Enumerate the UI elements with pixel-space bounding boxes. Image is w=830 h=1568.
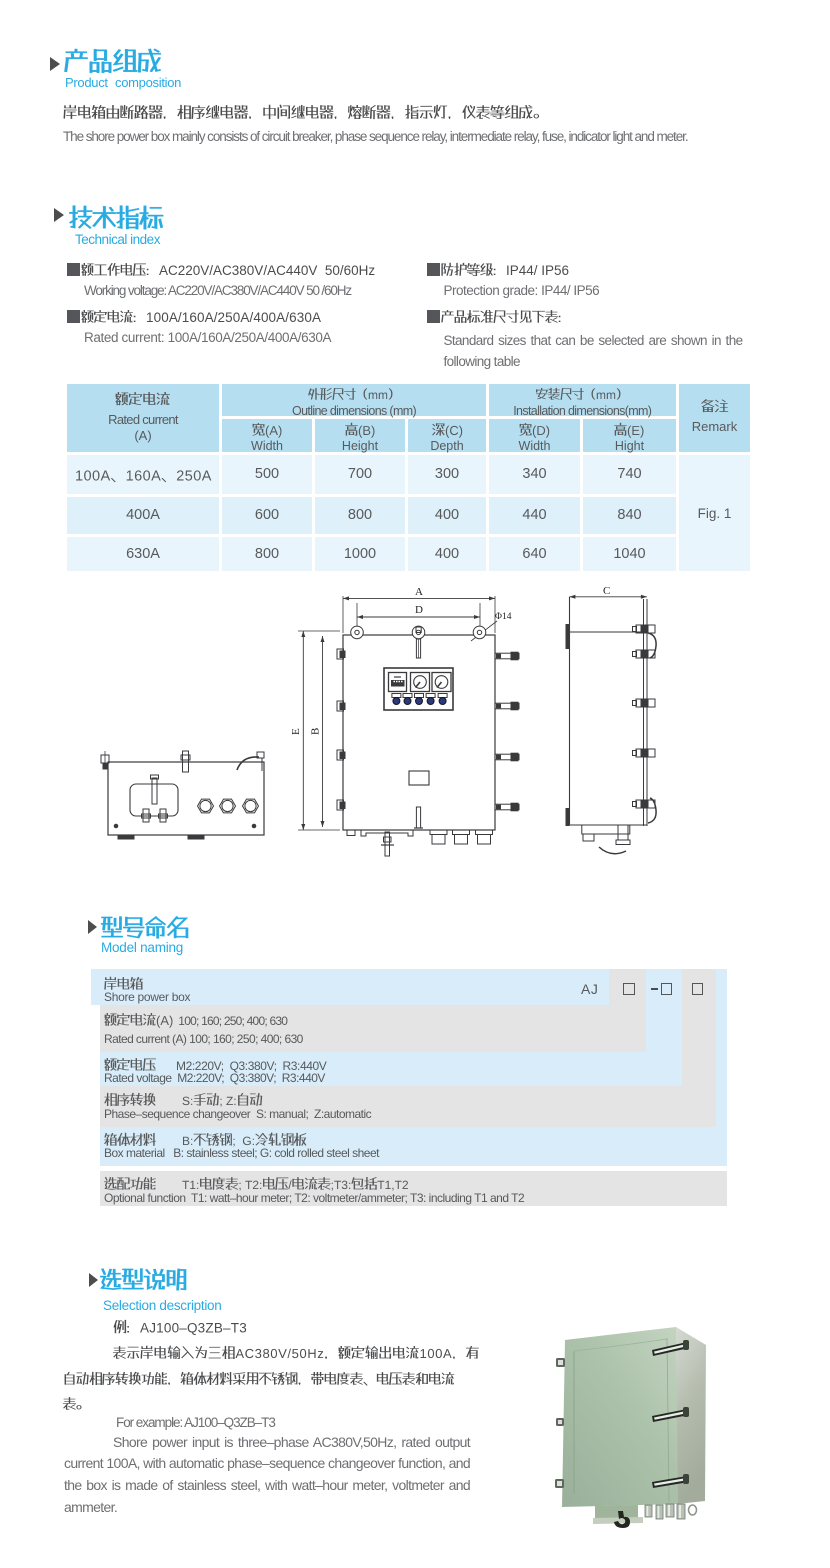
- svg-text:Φ14: Φ14: [495, 612, 512, 622]
- svg-text:A: A: [415, 586, 423, 598]
- svg-text:E: E: [290, 728, 302, 735]
- svg-text:C: C: [603, 585, 610, 597]
- svg-text:D: D: [415, 604, 423, 616]
- svg-text:B: B: [310, 728, 322, 735]
